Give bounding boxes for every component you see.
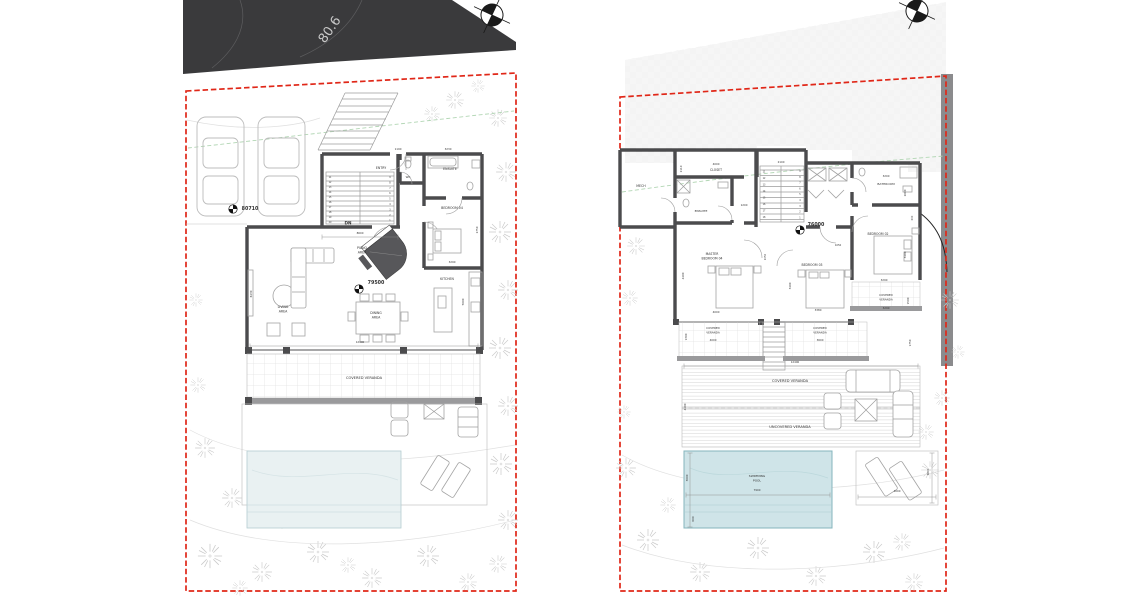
level-marker-76000 xyxy=(796,226,804,234)
stair-tread-number: 2 xyxy=(799,211,801,214)
plan-label: DINING xyxy=(370,311,382,315)
tree-icon xyxy=(934,390,949,405)
plan-label: VERANDA xyxy=(706,331,720,335)
tree-icon xyxy=(459,573,477,591)
plan-label: 12400 xyxy=(791,360,800,364)
stair-tread-number: 12 xyxy=(329,181,332,184)
plan-label: 4000 xyxy=(713,162,720,166)
tree-icon xyxy=(806,566,826,586)
stair-tread-number: 15 xyxy=(763,197,766,200)
tree-icon xyxy=(747,537,769,559)
plan-label: 2110 xyxy=(679,165,683,172)
tree-icon xyxy=(340,557,355,572)
stair-tread-number: 8 xyxy=(799,176,801,179)
plan-label: 600 xyxy=(910,215,914,220)
tree-icon xyxy=(660,497,675,512)
plan-label: 3400 xyxy=(788,282,792,289)
hall-closets xyxy=(808,168,847,198)
plan-label: SWIMMING xyxy=(749,474,766,478)
plan-label: COVERED xyxy=(879,293,893,297)
plan-label: 2000 xyxy=(903,189,907,196)
plan-label: CLOSET xyxy=(710,168,722,172)
tree-icon xyxy=(190,377,205,392)
plan-label: DN xyxy=(345,221,352,226)
plan-label: 12400 xyxy=(356,340,365,344)
stair-tread-number: 1 xyxy=(799,216,801,219)
plan-label: 3400 xyxy=(903,251,907,258)
veranda-master xyxy=(679,322,763,358)
plan-label: 3290 xyxy=(449,260,456,264)
tree-icon xyxy=(471,79,484,92)
plan-label: 2750 xyxy=(475,226,479,233)
plan-label: 1750 xyxy=(908,339,912,346)
plan-label: ENSUITE xyxy=(695,209,708,213)
bedroom04-furniture xyxy=(428,222,461,260)
tree-icon xyxy=(627,237,645,255)
plan-label: COVERED xyxy=(706,326,720,330)
stair-tread-number: 6 xyxy=(799,187,801,190)
plan-label: 3380 xyxy=(815,308,822,312)
plan-label: 7900 xyxy=(754,488,761,492)
veranda-steps xyxy=(763,322,785,370)
stair-tread-number: 18 xyxy=(329,211,332,214)
plan-label: 3000 xyxy=(685,474,689,481)
plan-label: PIANO xyxy=(357,246,367,250)
tree-icon xyxy=(489,221,511,243)
plan-label: WC xyxy=(406,175,411,179)
tree-icon xyxy=(489,555,507,573)
stair-tread-number: 5 xyxy=(389,198,391,201)
road xyxy=(183,0,516,74)
plan-label: 8600 xyxy=(357,231,364,235)
parked-cars xyxy=(197,117,305,216)
plan-label: 3290 xyxy=(881,278,888,282)
plan-label: ENSUITE xyxy=(443,167,457,171)
plan-label: AREA xyxy=(279,310,288,314)
plan-label: 5000 xyxy=(461,298,465,305)
plan-label: ENTRY xyxy=(376,166,386,170)
right-fixtures xyxy=(677,167,917,207)
stair-tread-number: 4 xyxy=(389,203,391,206)
stair-tread-number: 7 xyxy=(389,187,391,190)
tree-icon xyxy=(198,544,222,568)
left-stairwell: 11121314151617181920987654321 xyxy=(326,172,394,224)
plan-label: BEDROOM 04 xyxy=(701,257,722,261)
tree-icon xyxy=(232,580,247,595)
stair-tread-number: 11 xyxy=(329,176,332,179)
exterior-stair xyxy=(318,93,398,150)
tree-icon xyxy=(622,290,637,305)
stair-tread-number: 5 xyxy=(799,193,801,196)
stair-tread-number: 17 xyxy=(763,210,766,213)
retaining-wall-band xyxy=(941,74,953,366)
stair-tread-number: 18 xyxy=(763,216,766,219)
tree-icon xyxy=(446,91,464,109)
left-loungers xyxy=(420,455,471,498)
floor-plan-sheet: 80.6 xyxy=(0,0,1140,600)
plan-label: 3230 xyxy=(445,147,452,151)
plan-label: 2100 xyxy=(778,160,785,164)
plan-label: COVERED VERANDA xyxy=(346,376,383,380)
plan-label: MASTER xyxy=(706,252,720,256)
stair-tread-number: 14 xyxy=(763,190,766,193)
tree-icon xyxy=(637,529,659,551)
plan-label: AREA xyxy=(372,316,381,320)
plan-label: BEDROOM 04 xyxy=(441,206,463,210)
tree-icon xyxy=(189,293,202,306)
left-glazing xyxy=(245,347,483,354)
plan-label: COVERED xyxy=(813,326,827,330)
plan-label: BEDROOM 02 xyxy=(867,232,888,236)
contour-green xyxy=(188,111,514,148)
stair-tread-number: 6 xyxy=(389,192,391,195)
tree-icon xyxy=(489,337,511,359)
tree-icon xyxy=(498,280,518,300)
plan-label: 1200 xyxy=(741,203,748,207)
plan-label: 1500 xyxy=(906,297,910,304)
plan-label: 3600 xyxy=(817,338,824,342)
plan-label: 79500 xyxy=(368,280,385,286)
plan-label: 1050 xyxy=(835,243,842,247)
master-bed xyxy=(708,266,761,308)
plan-label: POOL xyxy=(753,479,762,483)
tree-icon xyxy=(863,541,885,563)
plan-label: 2800 xyxy=(926,468,930,475)
stair-tread-number: 14 xyxy=(329,191,332,194)
plan-label: 1050 xyxy=(763,253,767,260)
plan-label: 1190 xyxy=(395,147,402,151)
plan-label: 4400 xyxy=(683,403,687,410)
earth-hatch xyxy=(625,2,946,172)
plan-label: LIVING xyxy=(278,305,289,309)
plan-label: UNCOVERED VERANDA xyxy=(769,425,811,429)
tree-icon xyxy=(893,533,911,551)
level-marker-79500 xyxy=(355,285,363,293)
tree-icon xyxy=(921,461,939,479)
stair-tread-number: 16 xyxy=(329,201,332,204)
tree-icon xyxy=(252,562,272,582)
tree-icon xyxy=(424,106,439,121)
plan-label: 4000 xyxy=(710,338,717,342)
plan-label: 4000 xyxy=(713,310,720,314)
plan-label: 1300 xyxy=(684,333,688,340)
tree-icon xyxy=(195,438,215,458)
stair-tread-number: 9 xyxy=(799,170,801,173)
stair-tread-number: 3 xyxy=(799,205,801,208)
plan-label: KITCHEN xyxy=(440,277,454,281)
plan-label: 6430 xyxy=(249,290,253,297)
tree-icon xyxy=(362,568,382,588)
stair-tread-number: 13 xyxy=(329,186,332,189)
stair-tread-number: 7 xyxy=(799,182,801,185)
plan-label: 76000 xyxy=(808,222,825,228)
tree-icon xyxy=(496,162,516,182)
level-marker-80710 xyxy=(229,205,237,213)
tree-icon xyxy=(498,396,518,416)
left-fixtures xyxy=(405,156,480,190)
plan-label: VERANDA xyxy=(813,331,827,335)
stair-tread-number: 12 xyxy=(763,177,766,180)
tree-icon xyxy=(951,345,964,358)
stair-tread-number: 13 xyxy=(763,184,766,187)
stair-tread-number: 17 xyxy=(329,206,332,209)
plan-label: VERANDA xyxy=(879,298,893,302)
tree-icon xyxy=(905,573,923,591)
tree-icon xyxy=(417,545,439,567)
tree-icon xyxy=(489,109,507,127)
site-plan-drawing: 80.6 xyxy=(0,0,1140,600)
plan-label: BATHROOM xyxy=(877,182,895,186)
tree-icon xyxy=(490,453,512,475)
plan-label: MECH xyxy=(636,184,646,188)
stair-tread-number: 4 xyxy=(799,199,801,202)
stair-tread-number: 8 xyxy=(389,181,391,184)
living-furniture xyxy=(248,248,334,336)
stair-tread-number: 15 xyxy=(329,196,332,199)
plan-label: 600 xyxy=(691,516,695,521)
plan-label: BEDROOM 03 xyxy=(801,263,822,267)
stair-tread-number: 19 xyxy=(329,216,332,219)
plan-label: 4000 xyxy=(894,489,901,493)
left-pool xyxy=(247,451,401,528)
tree-icon xyxy=(222,488,242,508)
plan-label: 3200 xyxy=(883,174,890,178)
left-plan: 80.6 xyxy=(183,0,518,596)
bed03 xyxy=(798,270,851,308)
plan-label: 3290 xyxy=(883,306,890,310)
tree-icon xyxy=(918,424,933,439)
plan-label: COVERED VERANDA xyxy=(772,379,809,383)
kitchen-fixtures xyxy=(434,272,482,346)
plan-label: 4400 xyxy=(681,272,685,279)
right-plan: 1112131415161718987654321 xyxy=(616,0,965,591)
veranda-edge-beam xyxy=(245,398,482,404)
stair-tread-number: 20 xyxy=(329,221,332,224)
tree-icon xyxy=(307,541,329,563)
plan-label: AREA xyxy=(358,251,367,255)
tree-icon xyxy=(617,405,630,418)
right-stairwell: 1112131415161718987654321 xyxy=(760,166,804,222)
stair-tread-number: 16 xyxy=(763,203,766,206)
stair-tread-number: 9 xyxy=(389,176,391,179)
plan-label: 80710 xyxy=(242,206,259,212)
